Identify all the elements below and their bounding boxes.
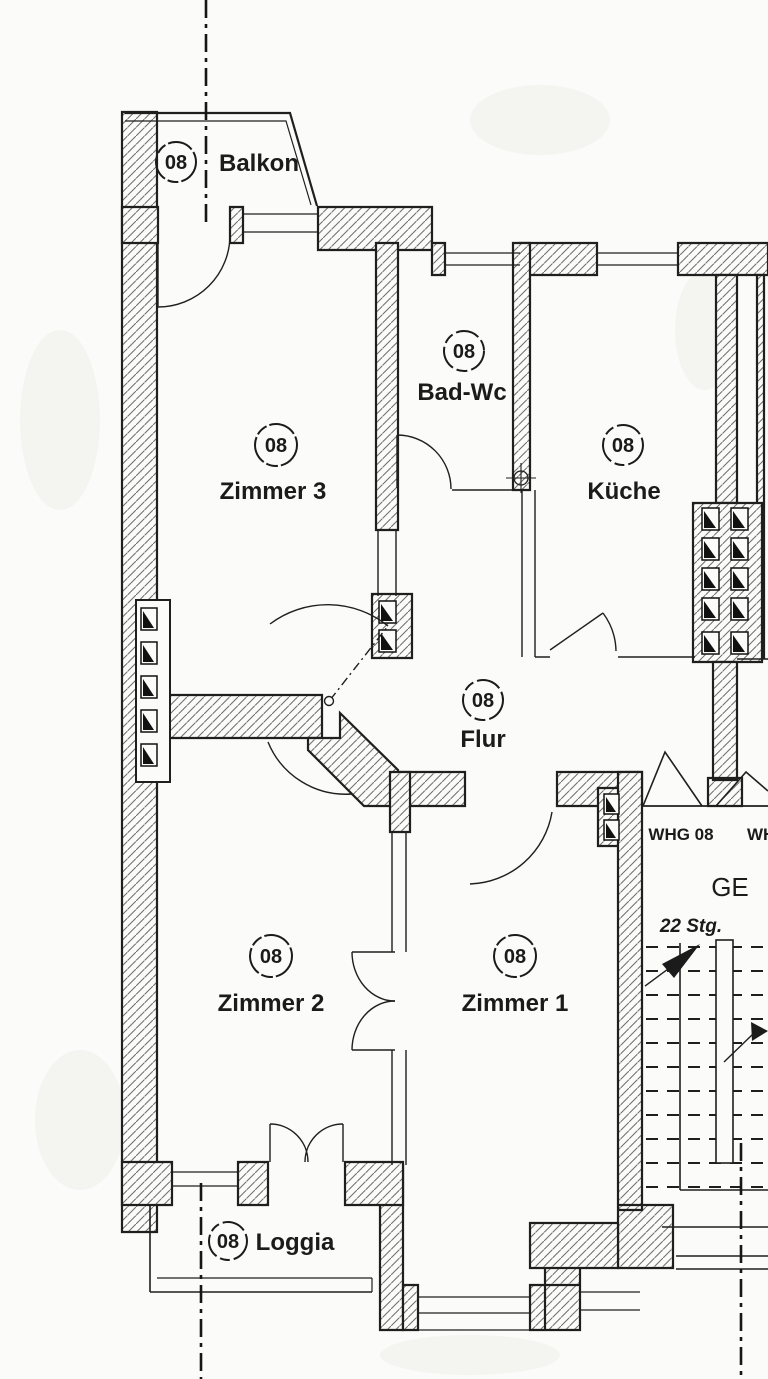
unit-number: 08 <box>612 435 634 457</box>
floor-plan-drawing: 08 Balkon 08 Zimmer 3 08 Bad-Wc 08 Küche… <box>0 0 768 1379</box>
room-name: Bad-Wc <box>417 379 506 406</box>
room-name: Loggia <box>256 1229 335 1256</box>
room-label-loggia: 08 Loggia <box>209 1222 335 1260</box>
walls <box>122 112 768 1330</box>
wall-landing-pillar <box>708 662 742 806</box>
room-label-balkon: 08 Balkon <box>156 142 299 182</box>
wall-zimmer1-south <box>403 1223 618 1330</box>
stairs-count-label: 22 Stg. <box>659 916 722 937</box>
stairwell-adjacent-label: WH <box>747 825 768 844</box>
stair-step-lines <box>646 947 766 1187</box>
unit-number: 08 <box>165 152 187 174</box>
wall-loggia-pillars <box>122 1162 403 1205</box>
room-label-kueche: 08 Küche <box>587 425 660 505</box>
door-zimmer1-hall <box>470 812 552 884</box>
wall-badwc-kueche <box>513 243 530 490</box>
door-double-zimmer1-zimmer2 <box>352 952 395 1050</box>
room-label-zimmer1: 08 Zimmer 1 <box>462 935 569 1017</box>
door-balcony <box>158 235 230 307</box>
unit-number: 08 <box>265 435 287 457</box>
room-name: Küche <box>587 478 660 505</box>
stairwell-area-label: GE <box>711 872 749 902</box>
exterior-wall-top-right <box>432 243 768 275</box>
unit-number: 08 <box>472 690 494 712</box>
wall-zimmer3-zimmer2 <box>157 695 322 738</box>
unit-number: 08 <box>217 1231 239 1253</box>
survey-point-marker <box>506 463 536 493</box>
room-label-flur: 08 Flur <box>460 680 505 753</box>
stair-direction-arrow-up <box>645 944 700 986</box>
door-kitchen <box>550 613 616 651</box>
door-double-loggia <box>270 1124 343 1162</box>
room-name: Zimmer 2 <box>218 990 325 1017</box>
floor-plan-page: 08 Balkon 08 Zimmer 3 08 Bad-Wc 08 Küche… <box>0 0 768 1379</box>
wall-east-stairwell <box>618 772 673 1268</box>
unit-number: 08 <box>260 946 282 968</box>
wall-badwc-west <box>376 243 398 530</box>
room-label-badwc: 08 Bad-Wc <box>417 331 506 406</box>
room-name: Zimmer 3 <box>220 478 327 505</box>
door-apartment-entrance <box>643 752 768 806</box>
unit-number: 08 <box>504 946 526 968</box>
room-name: Zimmer 1 <box>462 990 569 1017</box>
door-badwc <box>397 435 451 489</box>
entrance-steps <box>662 1227 768 1269</box>
unit-number: 08 <box>453 341 475 363</box>
wall-kitchen-east <box>716 275 737 503</box>
room-name: Flur <box>460 726 505 753</box>
room-name: Balkon <box>219 150 299 177</box>
stair-stringer <box>716 940 733 1163</box>
room-label-zimmer3: 08 Zimmer 3 <box>220 424 327 505</box>
door-zimmer3-hall <box>270 605 388 706</box>
room-label-zimmer2: 08 Zimmer 2 <box>218 935 325 1017</box>
stairwell-apartment-label: WHG 08 <box>648 825 713 844</box>
